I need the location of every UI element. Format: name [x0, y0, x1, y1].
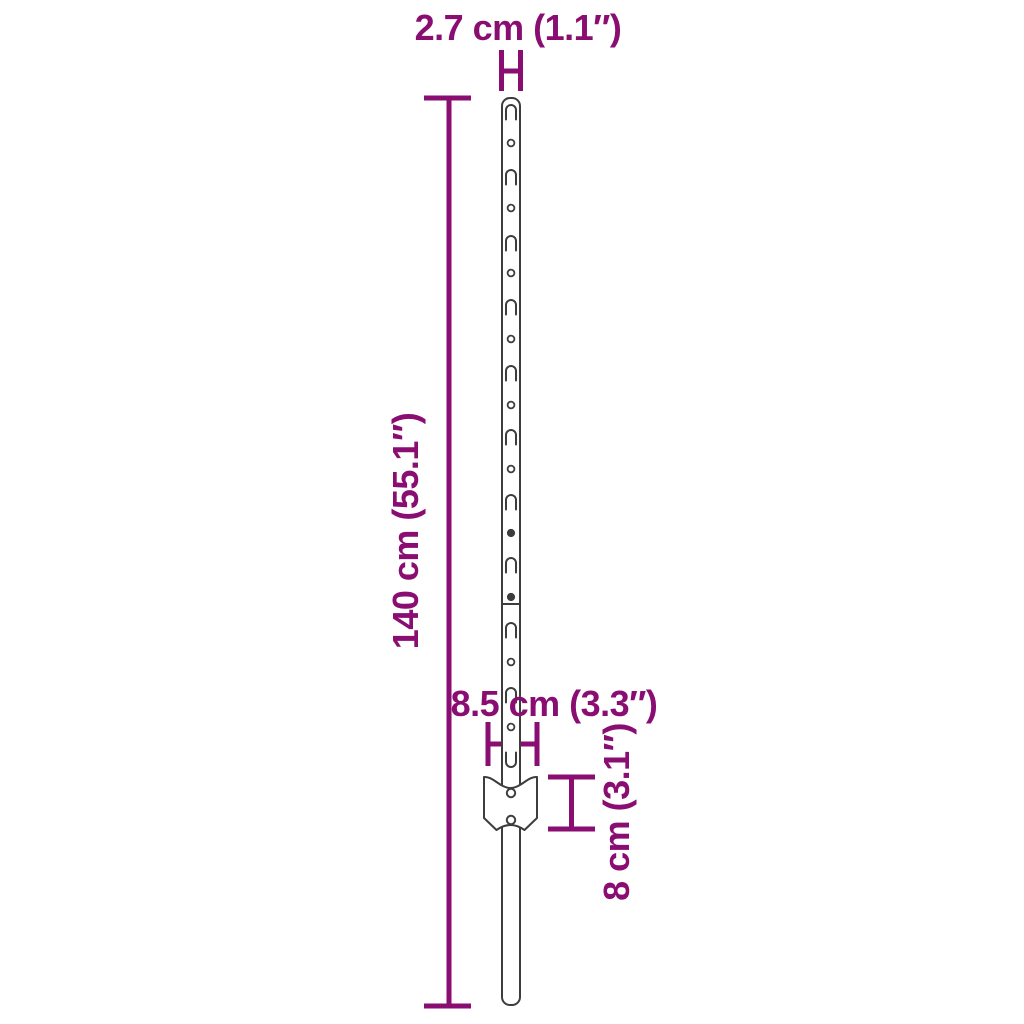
anchor-plate-hole [507, 789, 515, 797]
post-bolt-hole [508, 594, 514, 600]
post-illustration [0, 0, 1024, 1024]
plate-height-marker [548, 777, 595, 829]
width-dimension-marker [499, 50, 523, 91]
anchor-plate-hole [507, 816, 515, 824]
dimension-label-plate-width: 8.5 cm (3.3″) [451, 683, 658, 725]
dimension-label-post-width: 2.7 cm (1.1″) [415, 7, 622, 49]
post-body [502, 98, 520, 1005]
dimension-label-post-height: 140 cm (55.1″) [385, 413, 427, 649]
height-dimension-line [424, 98, 471, 1006]
dimension-label-plate-height: 8 cm (3.1″) [596, 723, 638, 901]
post-bolt-hole [508, 530, 514, 536]
u-post [484, 98, 537, 1005]
dimension-diagram: 2.7 cm (1.1″) 140 cm (55.1″) 8.5 cm (3.3… [0, 0, 1024, 1024]
